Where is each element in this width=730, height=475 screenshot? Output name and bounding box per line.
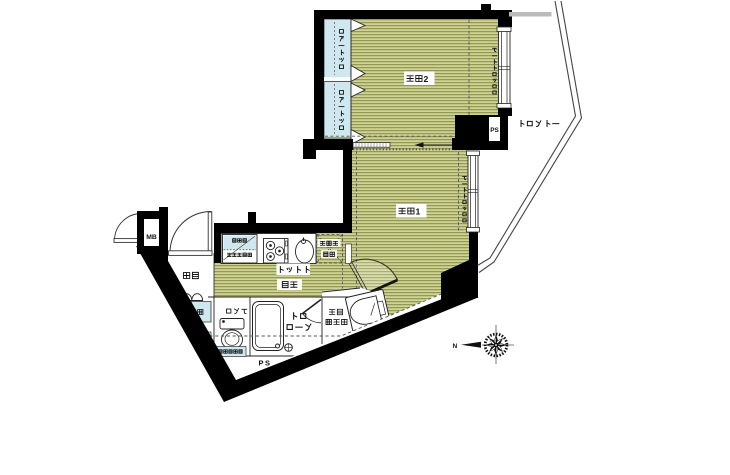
svg-text:PS: PS [490,127,499,134]
svg-text:N: N [453,343,458,350]
svg-text:1: 1 [416,206,421,216]
svg-text:MB: MB [146,234,157,241]
svg-text:2: 2 [424,74,429,84]
